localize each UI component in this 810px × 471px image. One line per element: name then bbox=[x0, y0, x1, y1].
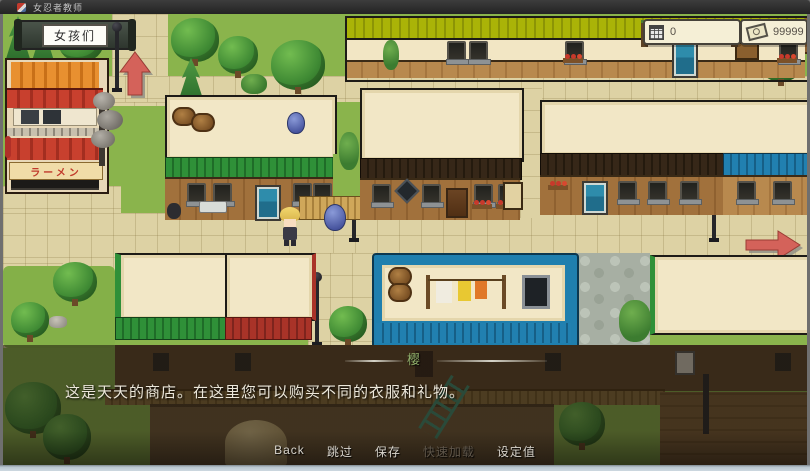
rooftop-green-shop bbox=[115, 253, 233, 321]
flower-box bbox=[548, 185, 568, 190]
menu-save[interactable]: 保存 bbox=[375, 443, 401, 460]
barrel bbox=[191, 113, 215, 132]
up-arrow[interactable] bbox=[116, 50, 154, 100]
blue-vase bbox=[324, 204, 346, 231]
cloth-orange bbox=[475, 281, 487, 299]
menu-settings[interactable]: 设定值 bbox=[497, 443, 536, 460]
window bbox=[422, 184, 441, 205]
window bbox=[648, 181, 667, 202]
rock-prop bbox=[49, 316, 67, 328]
round-tree bbox=[218, 36, 258, 74]
location-label: 女孩们 bbox=[42, 24, 108, 47]
calculator-icon bbox=[649, 25, 664, 40]
barrel bbox=[388, 283, 412, 302]
curtain-red bbox=[7, 138, 103, 160]
dialog-text: 这是天天的商店。在这里您可以购买不同的衣服和礼物。 bbox=[65, 381, 745, 402]
statue-prop bbox=[93, 92, 115, 110]
fascia-red bbox=[225, 317, 312, 340]
ramen-sign: ラーメン bbox=[9, 162, 103, 180]
glass-door bbox=[255, 185, 281, 221]
window-title: 女忍者教师 bbox=[33, 1, 83, 14]
upper-windows bbox=[13, 108, 97, 126]
fascia-green bbox=[115, 317, 227, 340]
flower-box bbox=[472, 204, 492, 209]
game-map-viewport[interactable]: ラーメン 女孩们 bbox=[3, 14, 807, 465]
rooftop-mid-right bbox=[360, 88, 524, 162]
character-leg bbox=[284, 240, 289, 246]
rooftop-red-shop bbox=[225, 253, 316, 321]
speaker-name: 樱 bbox=[407, 349, 421, 368]
window bbox=[447, 41, 466, 62]
menu-back[interactable]: Back bbox=[274, 443, 305, 460]
fascia-dark bbox=[540, 153, 725, 177]
rooftop-bottom-right bbox=[650, 255, 807, 335]
glass-door bbox=[582, 181, 608, 215]
window bbox=[680, 181, 699, 202]
wood-door bbox=[446, 188, 468, 218]
awning-red bbox=[7, 88, 103, 108]
game-window: 女忍者教师 bbox=[0, 0, 810, 471]
wall-right-light bbox=[723, 175, 807, 215]
banknote-icon bbox=[746, 23, 769, 41]
round-tree bbox=[53, 262, 97, 302]
curtain-orange bbox=[11, 62, 99, 88]
money-counter-value: 99999 bbox=[773, 26, 804, 38]
cloth-yellow bbox=[458, 281, 471, 301]
statue-prop bbox=[97, 110, 123, 130]
window-border-left bbox=[0, 14, 3, 465]
basin-prop bbox=[199, 201, 227, 213]
rooftop-mid-left bbox=[165, 95, 337, 161]
bulletin-board bbox=[503, 182, 523, 210]
bush bbox=[241, 74, 267, 94]
flower-box bbox=[563, 58, 583, 63]
speaker-line-left bbox=[345, 360, 403, 362]
quick-menu: Back 跳过 保存 快速加载 设定值 bbox=[3, 443, 807, 460]
window bbox=[618, 181, 637, 202]
menu-skip[interactable]: 跳过 bbox=[327, 443, 353, 460]
fascia-dark bbox=[360, 158, 522, 180]
character-leg bbox=[291, 240, 296, 246]
app-icon bbox=[17, 3, 26, 12]
lantern bbox=[5, 136, 11, 158]
wall-right bbox=[540, 175, 723, 215]
window bbox=[737, 181, 756, 202]
speaker-line-right bbox=[437, 360, 547, 362]
cloth-white bbox=[436, 281, 452, 303]
character-face bbox=[284, 219, 296, 227]
statue-prop bbox=[91, 130, 115, 148]
pot-prop bbox=[287, 112, 305, 134]
round-tree bbox=[329, 306, 367, 342]
wall-mid-right bbox=[360, 178, 520, 220]
menu-quickload: 快速加载 bbox=[423, 443, 475, 460]
character-body bbox=[283, 227, 297, 240]
tall-plant bbox=[339, 132, 359, 170]
window-border-bottom bbox=[0, 465, 810, 471]
shop-entrance bbox=[11, 180, 99, 190]
fascia-blue bbox=[376, 323, 571, 343]
window bbox=[43, 110, 61, 124]
player-character bbox=[279, 207, 301, 247]
vine-plant bbox=[383, 40, 399, 70]
building-blue-shop bbox=[372, 253, 579, 349]
round-tree bbox=[171, 18, 219, 62]
balcony-rail bbox=[7, 128, 103, 136]
dialog-box[interactable]: 樱 这是天天的商店。在这里您可以购买不同的衣服和礼物。 Back 跳过 保存 快… bbox=[3, 345, 807, 465]
glass-door bbox=[672, 40, 698, 78]
window bbox=[469, 41, 488, 62]
window bbox=[773, 181, 792, 202]
rooftop-right bbox=[540, 100, 807, 157]
window bbox=[21, 110, 39, 124]
window-titlebar[interactable]: 女忍者教师 bbox=[0, 0, 810, 14]
window bbox=[372, 184, 391, 205]
money-counter: 99999 bbox=[740, 19, 807, 45]
day-counter: 0 bbox=[643, 19, 741, 45]
round-tree bbox=[11, 302, 49, 338]
flower-box bbox=[777, 58, 797, 63]
ramen-shop: ラーメン bbox=[5, 58, 109, 194]
pot-prop bbox=[167, 203, 181, 219]
round-tree bbox=[271, 40, 325, 90]
roof-window bbox=[522, 275, 550, 309]
fascia-green bbox=[165, 157, 335, 179]
diamond-sign bbox=[394, 178, 419, 203]
bush bbox=[619, 300, 651, 342]
day-counter-value: 0 bbox=[670, 26, 676, 38]
fascia-blue bbox=[723, 153, 807, 177]
speaker-row: 樱 bbox=[3, 349, 807, 367]
